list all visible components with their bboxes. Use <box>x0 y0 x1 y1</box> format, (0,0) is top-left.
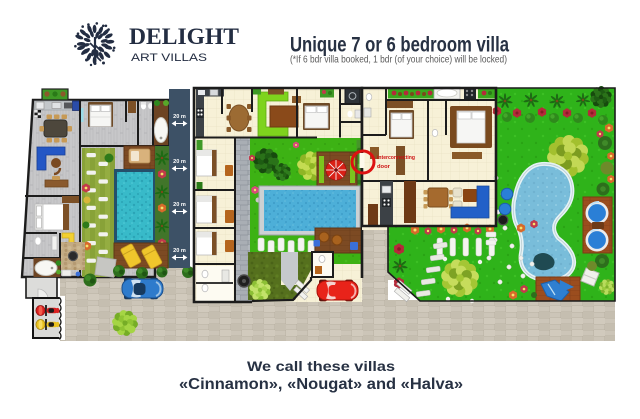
svg-text:20 m: 20 m <box>173 248 186 254</box>
svg-text:20 m: 20 m <box>173 159 186 165</box>
svg-text:door: door <box>377 164 391 170</box>
svg-text:20 m: 20 m <box>173 114 186 120</box>
svg-text:20 m: 20 m <box>173 202 186 208</box>
svg-text:ART VILLAS: ART VILLAS <box>131 52 207 64</box>
svg-text:DELIGHT: DELIGHT <box>129 24 239 49</box>
svg-text:We call these villas: We call these villas <box>247 358 395 374</box>
svg-text:Unique 7 or 6 bedroom villa: Unique 7 or 6 bedroom villa <box>290 34 509 57</box>
svg-text:«Cinnamon», «Nougat» and «Halv: «Cinnamon», «Nougat» and «Halva» <box>179 376 463 393</box>
svg-text:interconnecting: interconnecting <box>377 155 415 161</box>
svg-text:(*If 6 bdr villa booked, 1 bdr: (*If 6 bdr villa booked, 1 bdr (of your … <box>290 55 507 66</box>
